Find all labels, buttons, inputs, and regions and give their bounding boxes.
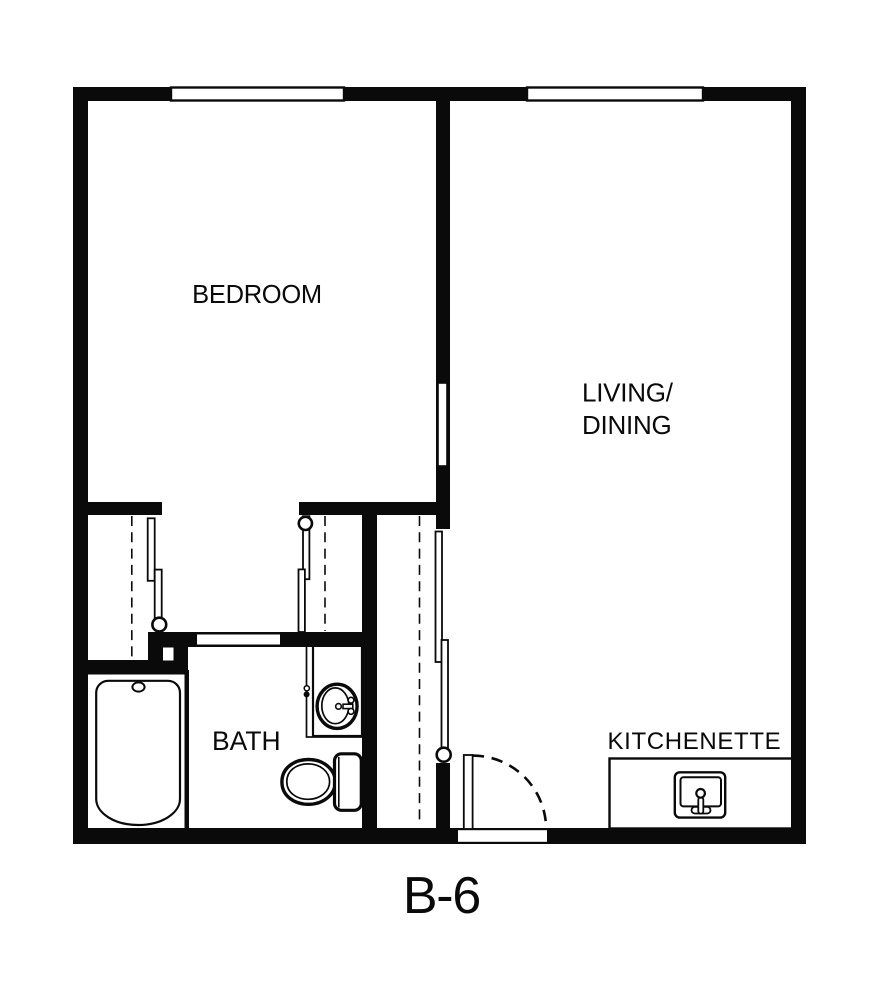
svg-text:B-6: B-6 [403,867,480,925]
svg-text:BEDROOM: BEDROOM [192,281,322,309]
svg-text:BATH: BATH [212,726,281,756]
svg-text:KITCHENETTE: KITCHENETTE [608,728,782,755]
svg-text:LIVING/: LIVING/ [582,378,674,408]
svg-text:DINING: DINING [582,410,672,440]
